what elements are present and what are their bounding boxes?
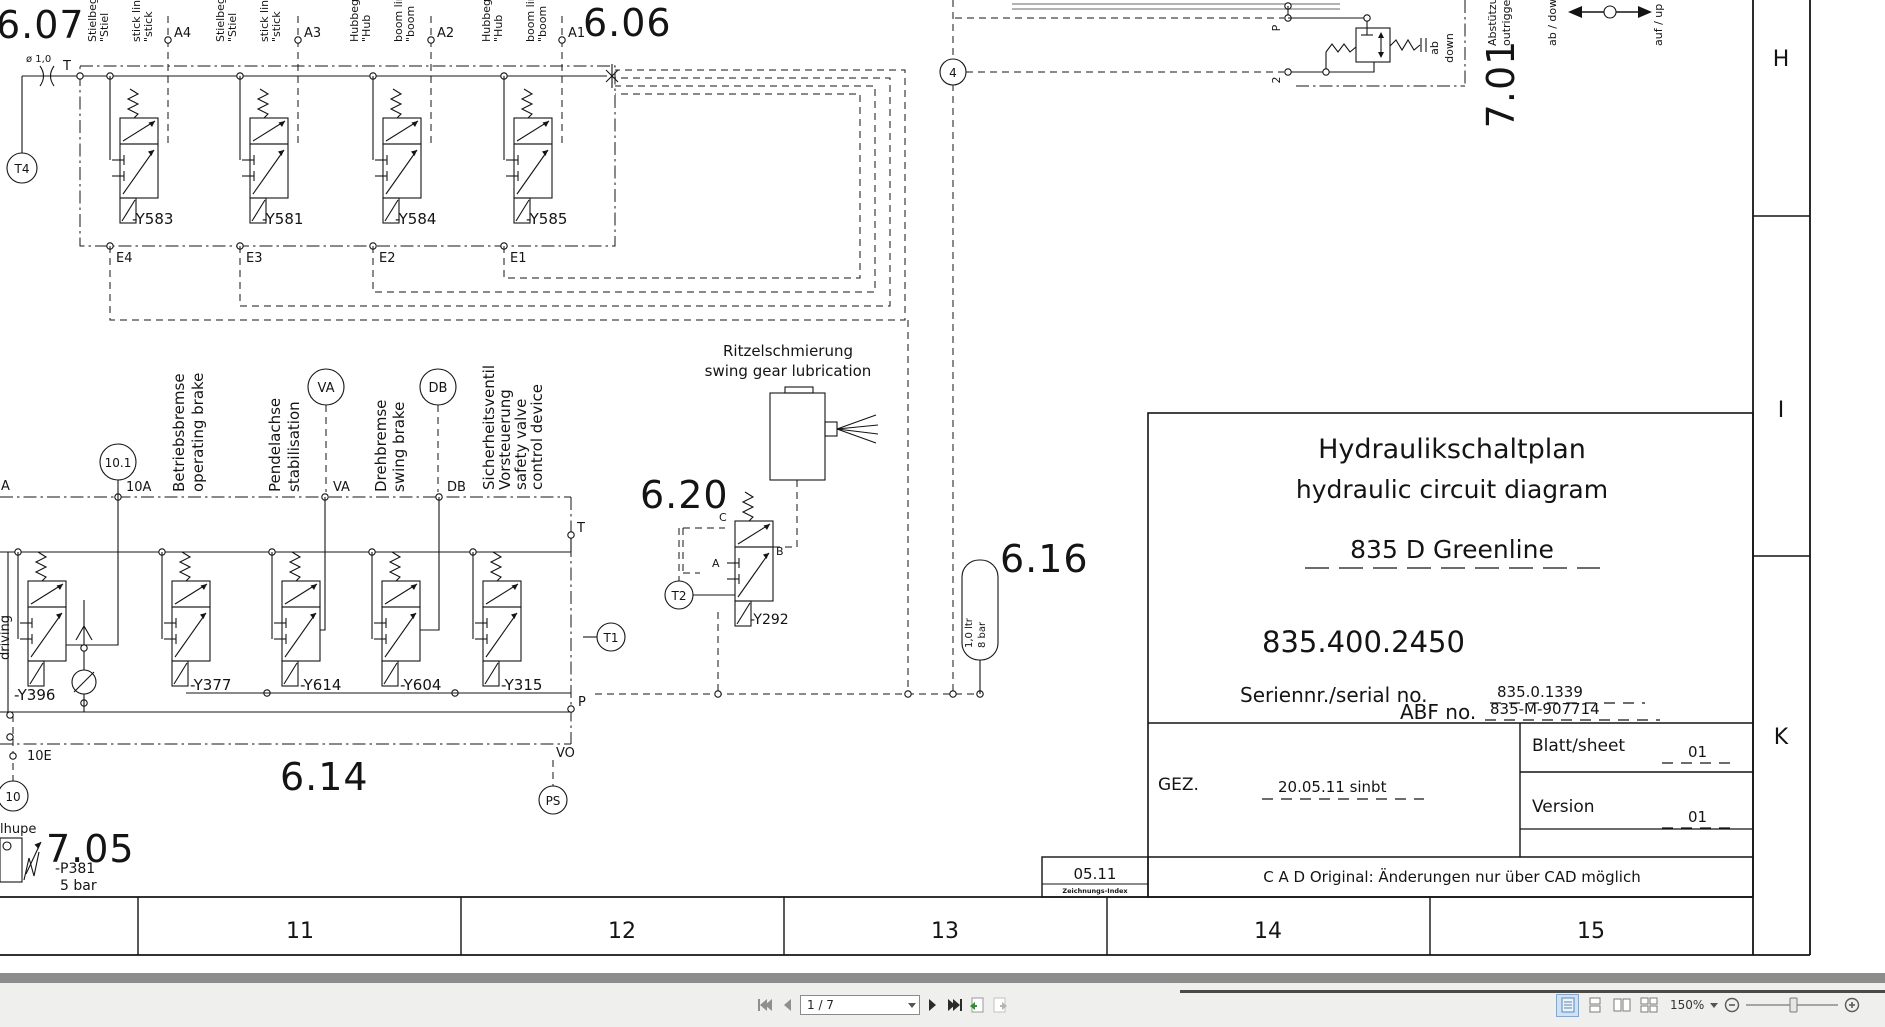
port-db: DB (447, 480, 466, 495)
svg-text:swing brake: swing brake (390, 402, 408, 492)
zoom-out-button[interactable] (1724, 997, 1740, 1013)
horn-label-fragment: lhupe (0, 822, 36, 837)
ruler-col-11: 11 (286, 919, 314, 944)
hydraulic-diagram-page: 6.07 6.06 ø 1,0 T T4 -Y583 -Y581 -Y584 -… (0, 0, 1885, 973)
index-value: 05.11 (1074, 865, 1117, 883)
page-dropdown-caret-icon[interactable] (908, 1003, 916, 1008)
svg-text:driving: driving (0, 615, 13, 660)
valve-id: -Y614 (300, 676, 341, 694)
port-e2: E2 (379, 251, 396, 266)
svg-text:stabilisation: stabilisation (285, 401, 303, 492)
orifice-label: ø 1,0 (26, 54, 51, 65)
abf-value: 835-M-907714 (1490, 700, 1600, 718)
page-number-value: 1 / 7 (807, 998, 834, 1012)
zoom-slider-thumb[interactable] (1790, 998, 1797, 1012)
ruler-col-15: 15 (1577, 919, 1605, 944)
version-label: Version (1532, 797, 1595, 817)
circle-4: 4 (949, 66, 957, 80)
valve-id: -Y396 (14, 686, 55, 704)
section-number: 6.20 (640, 473, 729, 517)
sheet-value: 01 (1688, 743, 1707, 761)
svg-text:Pendelachse: Pendelachse (266, 398, 284, 492)
svg-text:"boom: "boom (404, 6, 417, 42)
section-number: 7.01 (1479, 40, 1523, 129)
port-p: P (578, 695, 586, 710)
viewer-toolbar: 1 / 7 (0, 983, 1885, 1027)
mid-valve-group: Betriebsbremse operating brake Pendelach… (0, 365, 625, 814)
facing-pages-layout-button[interactable] (1610, 994, 1633, 1017)
svg-text:"Hub: "Hub (492, 15, 505, 42)
port-a: A (1, 479, 10, 494)
arrow-label-up: auf / up (1652, 4, 1665, 46)
svg-text:"Stiel: "Stiel (98, 13, 111, 42)
section-number: 6.07 (0, 3, 85, 47)
previous-view-button[interactable] (968, 995, 986, 1015)
section-number: 6.14 (280, 755, 369, 799)
sheet-label: Blatt/sheet (1532, 736, 1625, 756)
port-t: T (62, 59, 71, 74)
page-edge-band (0, 973, 1885, 983)
outrigger-label-en: outrigger (1500, 0, 1513, 46)
continuous-facing-layout-button[interactable] (1637, 994, 1660, 1017)
circle-10-1: 10.1 (105, 456, 132, 470)
index-label: Zeichnungs-Index (1062, 887, 1128, 895)
row-k: K (1774, 725, 1789, 750)
first-page-button[interactable] (756, 995, 774, 1015)
title-block: Hydraulikschaltplan hydraulic circuit di… (1042, 413, 1753, 897)
accumulator-pressure: 8 bar (977, 621, 988, 648)
port-a2: A2 (437, 26, 454, 41)
svg-text:"stick: "stick (270, 11, 283, 42)
cad-note: C A D Original: Änderungen nur über CAD … (1263, 867, 1640, 886)
label-down: down (1443, 33, 1456, 63)
part-number: 835.400.2450 (1262, 625, 1465, 659)
model-name: 835 D Greenline (1350, 535, 1554, 564)
single-page-layout-button[interactable] (1556, 994, 1579, 1017)
port-c: C (719, 511, 727, 524)
svg-text:"stick: "stick (142, 11, 155, 42)
valve-id: -Y585 (526, 210, 567, 228)
next-view-button[interactable] (990, 995, 1008, 1015)
title-en: hydraulic circuit diagram (1296, 475, 1608, 504)
serial-value: 835.0.1339 (1497, 683, 1583, 701)
valve-id: -Y583 (132, 210, 173, 228)
port-t-mid: T (576, 521, 585, 536)
svg-text:Drehbremse: Drehbremse (372, 400, 390, 492)
lubrication-title-de: Ritzelschmierung (723, 342, 853, 360)
svg-text:"Hub: "Hub (360, 15, 373, 42)
zoom-dropdown-caret-icon[interactable] (1708, 1001, 1720, 1009)
port-a3: A3 (304, 26, 321, 41)
pdf-viewer: 6.07 6.06 ø 1,0 T T4 -Y583 -Y581 -Y584 -… (0, 0, 1885, 1027)
pressure-switch-group: lhupe 7.05 -P381 5 bar (0, 822, 135, 894)
port-e4: E4 (116, 251, 133, 266)
valve-id: -Y581 (262, 210, 303, 228)
port-vo: VO (556, 746, 575, 761)
outrigger-label-de: Abstützung (1486, 0, 1499, 46)
gez-value: 20.05.11 sinbt (1278, 778, 1387, 796)
switch-pressure: 5 bar (60, 878, 97, 894)
next-page-button[interactable] (924, 995, 942, 1015)
row-h: H (1773, 47, 1790, 72)
zoom-slider[interactable] (1744, 996, 1840, 1014)
version-value: 01 (1688, 808, 1707, 826)
valve-id: -Y377 (190, 676, 231, 694)
port-10e: 10E (27, 749, 52, 764)
abf-label: ABF no. (1400, 700, 1476, 724)
circle-t2: T2 (671, 589, 687, 603)
svg-text:"boom: "boom (536, 6, 549, 42)
port-p-outrigger: P (1270, 24, 1283, 31)
port-va: VA (333, 480, 350, 495)
accumulator-group: 4 6.16 1,0 ltr 8 bar (940, 59, 1089, 694)
zoom-level-value: 150% (1670, 998, 1704, 1012)
lubrication-title-en: swing gear lubrication (705, 362, 872, 380)
port-a1: A1 (568, 26, 585, 41)
mid-rotated-labels: Betriebsbremse operating brake Pendelach… (0, 365, 546, 660)
port-e3: E3 (246, 251, 263, 266)
svg-text:operating brake: operating brake (189, 373, 207, 492)
zoom-controls: 150% (1556, 983, 1860, 1027)
port-10a: 10A (126, 480, 152, 495)
title-de: Hydraulikschaltplan (1318, 434, 1586, 465)
port-e1: E1 (510, 251, 527, 266)
valve-id: -Y604 (400, 676, 441, 694)
lubrication-group: Ritzelschmierung swing gear lubrication … (640, 342, 878, 628)
svg-text:control device: control device (528, 384, 546, 490)
page-navigation: 1 / 7 (756, 983, 1008, 1027)
section-number: 6.16 (1000, 537, 1089, 581)
continuous-layout-button[interactable] (1583, 994, 1606, 1017)
row-i: I (1778, 398, 1785, 423)
switch-id: -P381 (55, 861, 95, 877)
ruler-col-12: 12 (608, 919, 636, 944)
arrow-label-down: ab / down (1546, 0, 1559, 46)
zoom-in-button[interactable] (1844, 997, 1860, 1013)
last-page-button[interactable] (946, 995, 964, 1015)
previous-page-button[interactable] (778, 995, 796, 1015)
valve-id: -Y315 (501, 676, 542, 694)
circle-ps: PS (546, 794, 561, 808)
page-number-input[interactable]: 1 / 7 (800, 995, 920, 1015)
valve-id: -Y292 (750, 612, 789, 628)
port-2: 2 (1270, 77, 1283, 84)
circle-10: 10 (5, 790, 20, 804)
section-number: 6.06 (583, 1, 672, 45)
valve-id: -Y584 (395, 210, 436, 228)
accumulator-volume: 1,0 ltr (964, 617, 975, 648)
circle-db: DB (429, 381, 448, 396)
label-ab: ab (1428, 41, 1441, 55)
ruler-col-13: 13 (931, 919, 959, 944)
top-valve-group: 6.07 6.06 ø 1,0 T T4 -Y583 -Y581 -Y584 -… (0, 0, 672, 266)
svg-text:"Stiel: "Stiel (226, 13, 239, 42)
svg-text:Betriebsbremse: Betriebsbremse (170, 373, 188, 492)
outrigger-group: P ab down 2 7.01 Abstützung outrigger ab… (955, 0, 1665, 128)
port-a4: A4 (174, 26, 191, 41)
ruler-col-14: 14 (1254, 919, 1282, 944)
port-a-y292: A (712, 557, 720, 570)
gez-label: GEZ. (1158, 775, 1199, 795)
port-t4-circle: T4 (14, 162, 30, 176)
circle-t1: T1 (603, 631, 619, 645)
circle-va: VA (318, 381, 335, 396)
